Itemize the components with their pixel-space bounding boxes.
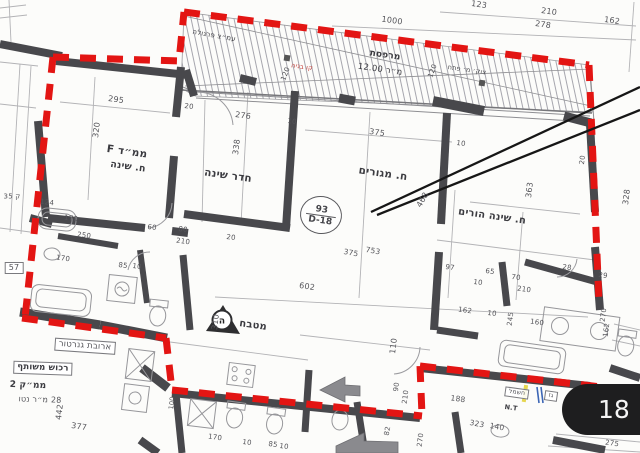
page-number: 18 <box>598 395 630 424</box>
stamp-code: D-18 <box>305 212 336 227</box>
toilet-bottom-2 <box>264 407 285 435</box>
arrow-left <box>320 377 360 402</box>
fixtures <box>30 207 637 438</box>
entrance-marker-letter: ה <box>219 317 225 327</box>
sink-left <box>43 247 60 261</box>
double-basin <box>540 307 620 351</box>
toilet-left <box>148 299 169 327</box>
plan-stamp: 93 D-18 <box>298 193 345 236</box>
shower <box>187 399 216 429</box>
basin-bottom-right <box>490 424 509 438</box>
toilet-bottom-1 <box>224 401 245 429</box>
utility-marks <box>522 385 543 403</box>
bathtub-right <box>498 340 567 375</box>
washing-machine <box>107 275 138 304</box>
kitchen-counter <box>122 384 150 413</box>
arrow-bottom <box>336 433 398 453</box>
page-number-badge: 18 <box>562 384 640 435</box>
balcony-hatch <box>181 12 593 113</box>
electric-highlight <box>522 385 528 402</box>
stove <box>227 362 255 387</box>
gas-line-mark <box>537 387 543 403</box>
entrance-marker: ה <box>206 305 240 334</box>
bathtub-left <box>30 284 92 317</box>
floor-plan: ה 10001232102781622953202027610338375101… <box>0 0 640 453</box>
